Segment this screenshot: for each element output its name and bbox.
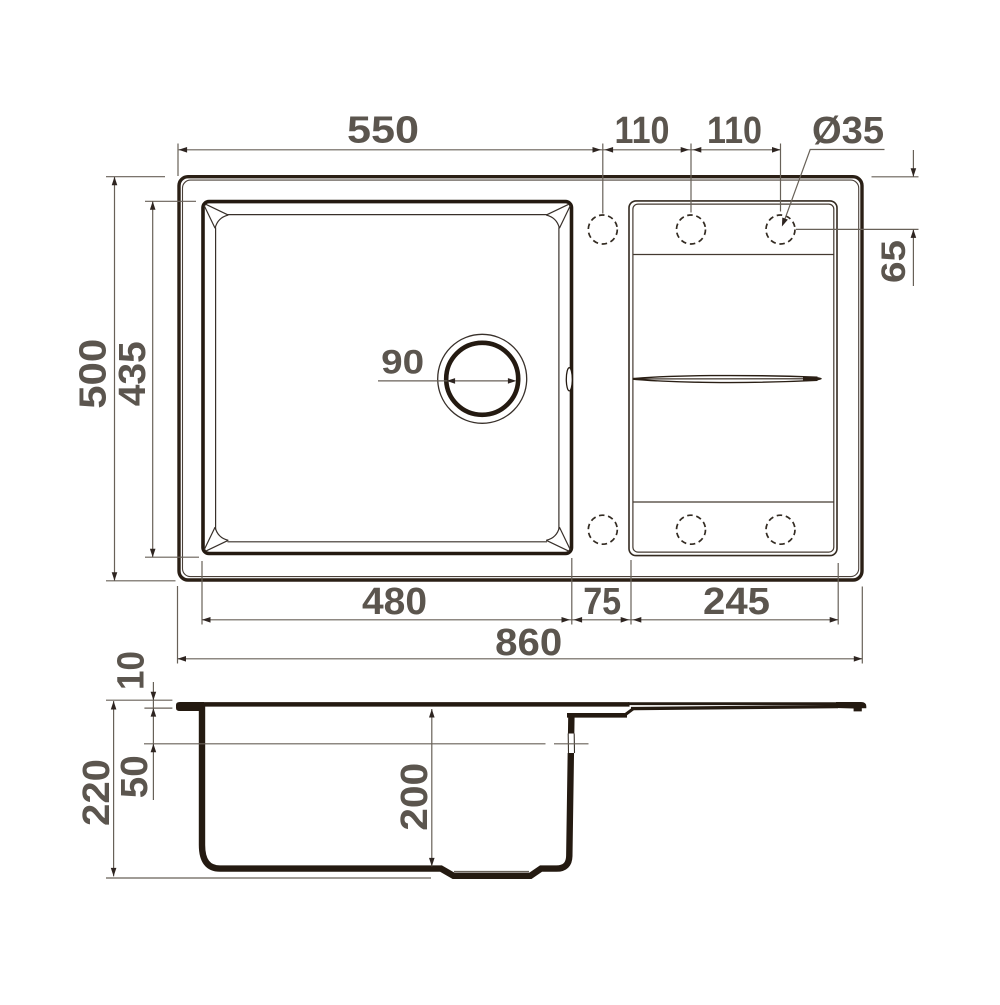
svg-text:75: 75 xyxy=(583,581,621,623)
svg-text:245: 245 xyxy=(703,581,770,623)
svg-text:860: 860 xyxy=(495,622,562,664)
svg-text:500: 500 xyxy=(73,339,115,409)
svg-text:110: 110 xyxy=(707,110,762,152)
svg-text:435: 435 xyxy=(112,341,154,406)
svg-text:90: 90 xyxy=(381,344,424,382)
svg-text:200: 200 xyxy=(394,763,436,831)
svg-text:Ø35: Ø35 xyxy=(812,110,884,152)
svg-text:110: 110 xyxy=(615,110,670,152)
svg-text:550: 550 xyxy=(347,110,419,152)
svg-text:50: 50 xyxy=(114,755,156,798)
svg-text:65: 65 xyxy=(875,240,913,283)
svg-text:220: 220 xyxy=(76,759,118,826)
svg-text:480: 480 xyxy=(362,581,427,623)
svg-text:10: 10 xyxy=(111,651,153,690)
